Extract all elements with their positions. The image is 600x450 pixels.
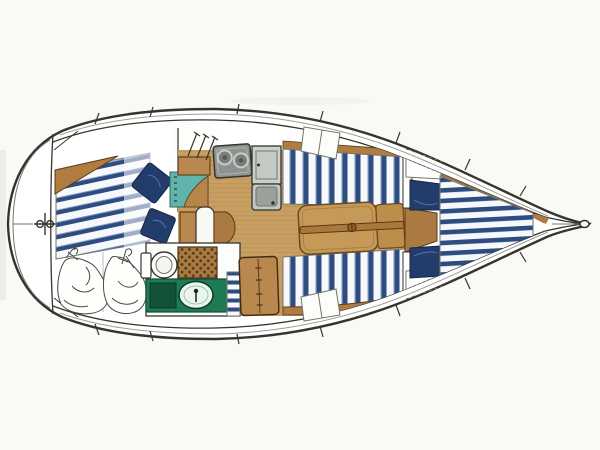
- companionway-steps: [239, 256, 279, 315]
- galley-locker: [252, 146, 281, 184]
- vanity-hatch: [150, 283, 176, 308]
- wood-shelf: [178, 157, 210, 175]
- fwd-cushion: [410, 180, 440, 210]
- scan-edge-shadow: [0, 150, 6, 300]
- anchor-roller-fitting: [580, 221, 589, 228]
- rounded-side-table: [214, 212, 235, 243]
- settee-cushion: [283, 149, 405, 206]
- galley-sink: [252, 184, 281, 210]
- shower-grate: [178, 247, 217, 278]
- striped-towel: [227, 272, 240, 316]
- vanity-sink: [146, 279, 239, 312]
- head-compartment: [141, 243, 240, 316]
- nav-cabinet: [180, 212, 196, 243]
- sink-drain: [271, 201, 275, 205]
- door-handle: [257, 164, 260, 167]
- scan-smudge: [230, 97, 370, 105]
- stove: [213, 144, 252, 179]
- salon-table: [298, 200, 405, 254]
- boat-plan: [0, 0, 600, 450]
- fwd-cushion: [410, 246, 440, 278]
- scanned-boat-plan-page: [0, 0, 600, 450]
